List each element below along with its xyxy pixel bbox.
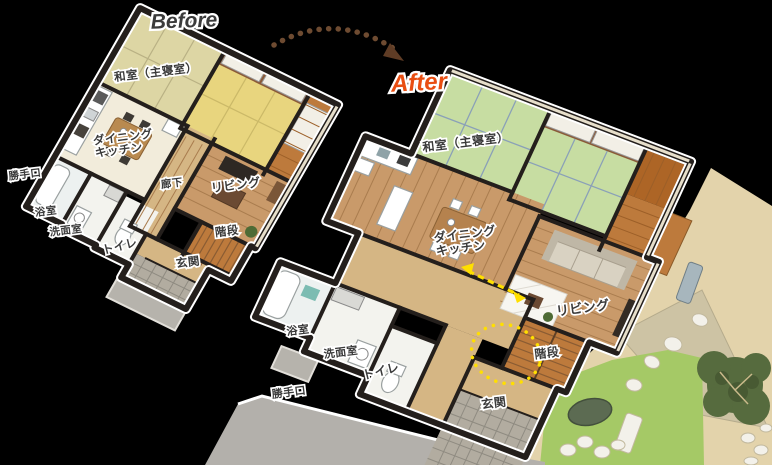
label-before-hallway: 廊下: [160, 175, 183, 191]
floorplan-canvas: Before After 和室（主寝室） ダイニング キッチン 勝手口 浴室 洗…: [0, 0, 772, 465]
after-title: After: [389, 68, 449, 98]
label-after-back-door: 勝手口: [271, 383, 307, 401]
label-before-bathroom: 浴室: [34, 203, 57, 219]
label-after-entrance: 玄関: [481, 394, 508, 412]
transition-arrow: [274, 29, 396, 50]
label-after-stairs: 階段: [534, 344, 561, 362]
before-title: Before: [150, 8, 218, 33]
floorplan-comparison: Before After 和室（主寝室） ダイニング キッチン 勝手口 浴室 洗…: [0, 0, 772, 465]
